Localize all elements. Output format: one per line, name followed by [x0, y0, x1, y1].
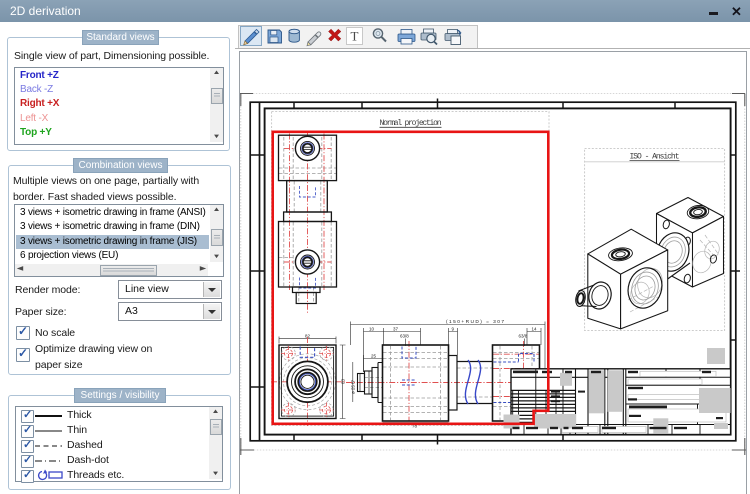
svg-text:ø 25 f7: ø 25 f7	[351, 379, 356, 394]
svg-text:63/8: 63/8	[519, 334, 528, 339]
svg-text:Normal projection: Normal projection	[380, 119, 442, 128]
svg-text:25: 25	[371, 353, 377, 358]
svg-text:10: 10	[369, 326, 375, 331]
svg-text:T: T	[351, 29, 359, 44]
svg-text:83: 83	[341, 378, 346, 384]
svg-text:(150+RUD) = 307: (150+RUD) = 307	[446, 319, 504, 325]
svg-text:37: 37	[393, 326, 399, 331]
svg-text:63/8: 63/8	[400, 334, 409, 339]
svg-text:14: 14	[532, 326, 538, 331]
